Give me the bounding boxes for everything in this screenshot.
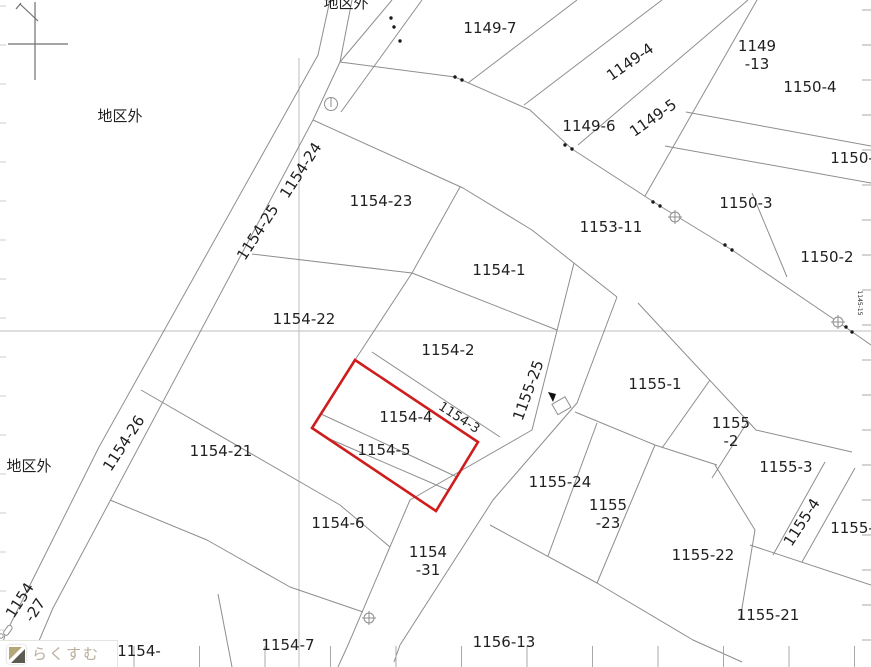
boundary-1154-23-south bbox=[252, 254, 412, 273]
parcel-label: 1149-6 bbox=[562, 117, 615, 135]
parcel-label: 1150-3 bbox=[719, 194, 772, 212]
parcel-label: 1154-5 bbox=[357, 441, 410, 459]
strip-1150-line-1 bbox=[686, 112, 871, 146]
road-b-left-edge bbox=[338, 263, 574, 667]
long-dotted-boundary bbox=[340, 62, 871, 345]
parcel-label: 1154-4 bbox=[379, 408, 432, 426]
house-logo-icon bbox=[7, 645, 26, 664]
boundary-dot bbox=[723, 243, 726, 246]
boundary-1154-6-1154-7 bbox=[218, 594, 232, 667]
survey-cross-mark bbox=[8, 2, 68, 80]
parcel-label: 1155-24 bbox=[529, 473, 592, 491]
parcel-label: 1154-1 bbox=[472, 261, 525, 279]
boundary-dot bbox=[850, 330, 853, 333]
boundary-1149-13-1150-4 bbox=[645, 0, 757, 196]
parcel-label: 1154-2 bbox=[421, 341, 474, 359]
parcel-labels: 地区外地区外1149-71149-41149-131150-41149-5114… bbox=[2, 0, 871, 660]
pointer-arrow-icon bbox=[548, 392, 556, 402]
parcel-label: 1154-23 bbox=[350, 192, 413, 210]
parcel-label: 地区外 bbox=[97, 107, 142, 125]
top-wedge-line-2 bbox=[341, 0, 422, 112]
parcel-label: 1149-13 bbox=[738, 37, 776, 73]
parcel-label: 1149-7 bbox=[463, 19, 516, 37]
watermark-text: らくすむ bbox=[32, 647, 100, 662]
parcel-label: 1156-13 bbox=[473, 633, 536, 651]
boundary-dot bbox=[398, 39, 401, 42]
parcel-label: 1154-21 bbox=[190, 442, 253, 460]
boundary-1154-23-east bbox=[355, 187, 460, 360]
parcel-label: 1155-3 bbox=[759, 458, 812, 476]
boundary-dot bbox=[844, 325, 847, 328]
parcel-label: 1145-15 bbox=[856, 290, 863, 315]
manhole-circle-icon bbox=[325, 98, 338, 111]
benchmark-icon bbox=[362, 611, 376, 625]
strip-1149-line-1 bbox=[468, 0, 577, 83]
boundary-1155-21-north bbox=[750, 545, 871, 585]
boundary-1155-22-east bbox=[715, 465, 755, 620]
road-b-square-marker bbox=[548, 392, 571, 415]
parcel-label: 1154- bbox=[117, 642, 161, 660]
benchmark-icon bbox=[831, 315, 845, 329]
divider-1154-1-1154-2 bbox=[412, 273, 557, 330]
boundary-1155-24-north bbox=[575, 412, 717, 465]
cadastral-map: 地区外地区外1149-71149-41149-131150-41149-5114… bbox=[0, 0, 871, 667]
parcel-label: 1155-1 bbox=[628, 375, 681, 393]
parcel-label: 1153-11 bbox=[580, 218, 643, 236]
boundary-dot bbox=[392, 25, 395, 28]
parcel-label: 1150-4 bbox=[783, 78, 836, 96]
parcel-label: 1155-23 bbox=[589, 496, 627, 532]
highlighted-parcel-outline[interactable] bbox=[312, 360, 478, 511]
parcel-label: 1154-7 bbox=[261, 636, 314, 654]
boundary-dot bbox=[570, 147, 573, 150]
boundary-dot bbox=[651, 200, 654, 203]
parcel-label: 1155-21 bbox=[737, 606, 800, 624]
parcel-label: 地区外 bbox=[6, 457, 51, 475]
parcel-label: 1155- bbox=[830, 519, 871, 537]
parcel-label: 1150-2 bbox=[800, 248, 853, 266]
parcel-label: 1149-5 bbox=[626, 95, 680, 140]
parcel-label: 地区外 bbox=[323, 0, 368, 12]
parcel-label: 1150- bbox=[830, 149, 871, 167]
parcel-label: 1155-22 bbox=[672, 546, 735, 564]
watermark: らくすむ bbox=[0, 640, 118, 667]
parcel-label: 1154-25 bbox=[233, 201, 282, 263]
boundary-dot bbox=[460, 78, 463, 81]
parcel-label: 1155-2 bbox=[712, 414, 750, 450]
parcel-label: 1154-6 bbox=[311, 514, 364, 532]
parcel-label: 1154-31 bbox=[409, 543, 447, 579]
parcel-label: 1154-24 bbox=[276, 139, 325, 201]
parcel-label: 1154-27 bbox=[2, 579, 53, 631]
parcel-label: 1154-22 bbox=[273, 310, 336, 328]
boundary-dot bbox=[658, 204, 661, 207]
boundary-dot bbox=[563, 143, 566, 146]
parcel-label: 1149-4 bbox=[603, 39, 657, 84]
boundary-dot bbox=[730, 248, 733, 251]
boundary-dot bbox=[453, 75, 456, 78]
road-a-small-marker bbox=[0, 624, 13, 638]
boundary-dot bbox=[389, 16, 392, 19]
